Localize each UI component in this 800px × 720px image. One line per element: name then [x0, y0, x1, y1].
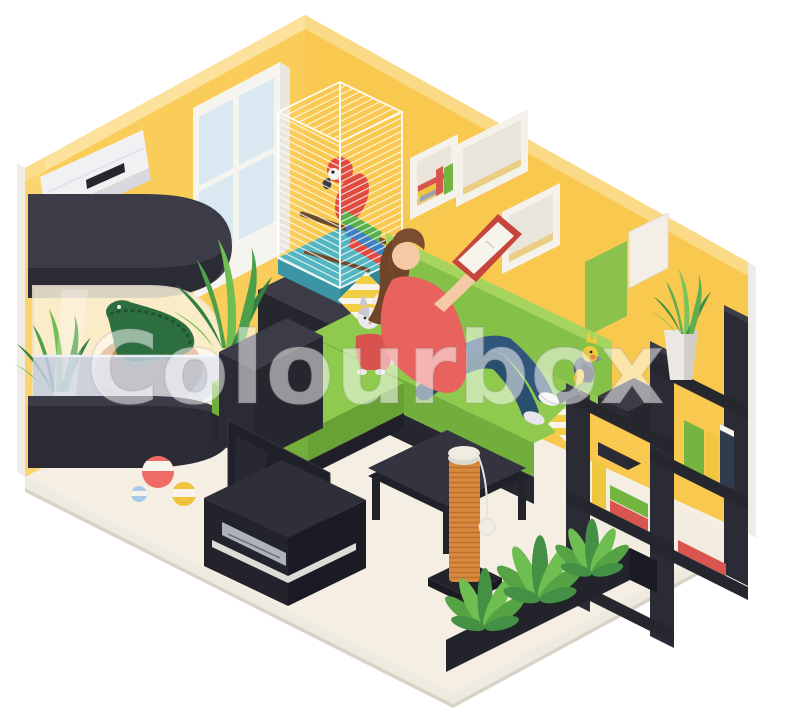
- illustration-living-room: Colourbox: [0, 0, 800, 720]
- cockatiel-head: [582, 346, 598, 362]
- table-leg: [372, 476, 380, 520]
- crocodile-eye: [117, 305, 121, 309]
- table-leg: [518, 476, 526, 520]
- right-wall-edge: [748, 262, 756, 538]
- post-rope: [449, 458, 480, 582]
- shelf-column: [650, 346, 674, 648]
- cat-nose: [369, 322, 372, 325]
- terrarium: [14, 194, 232, 468]
- toy-ball-hanging: [479, 519, 495, 535]
- cockatiel-eye: [590, 351, 593, 354]
- cockatiel-cheek: [590, 354, 595, 359]
- left-wall-edge: [17, 163, 25, 477]
- scene-canvas: [0, 0, 800, 720]
- cat-paw: [375, 369, 385, 375]
- cockatiel-leg: [579, 384, 580, 392]
- cat-eye: [364, 317, 367, 320]
- woman-head: [392, 242, 420, 270]
- cat-paw: [357, 369, 367, 375]
- post-cap: [448, 446, 480, 460]
- red-ball: [142, 456, 174, 488]
